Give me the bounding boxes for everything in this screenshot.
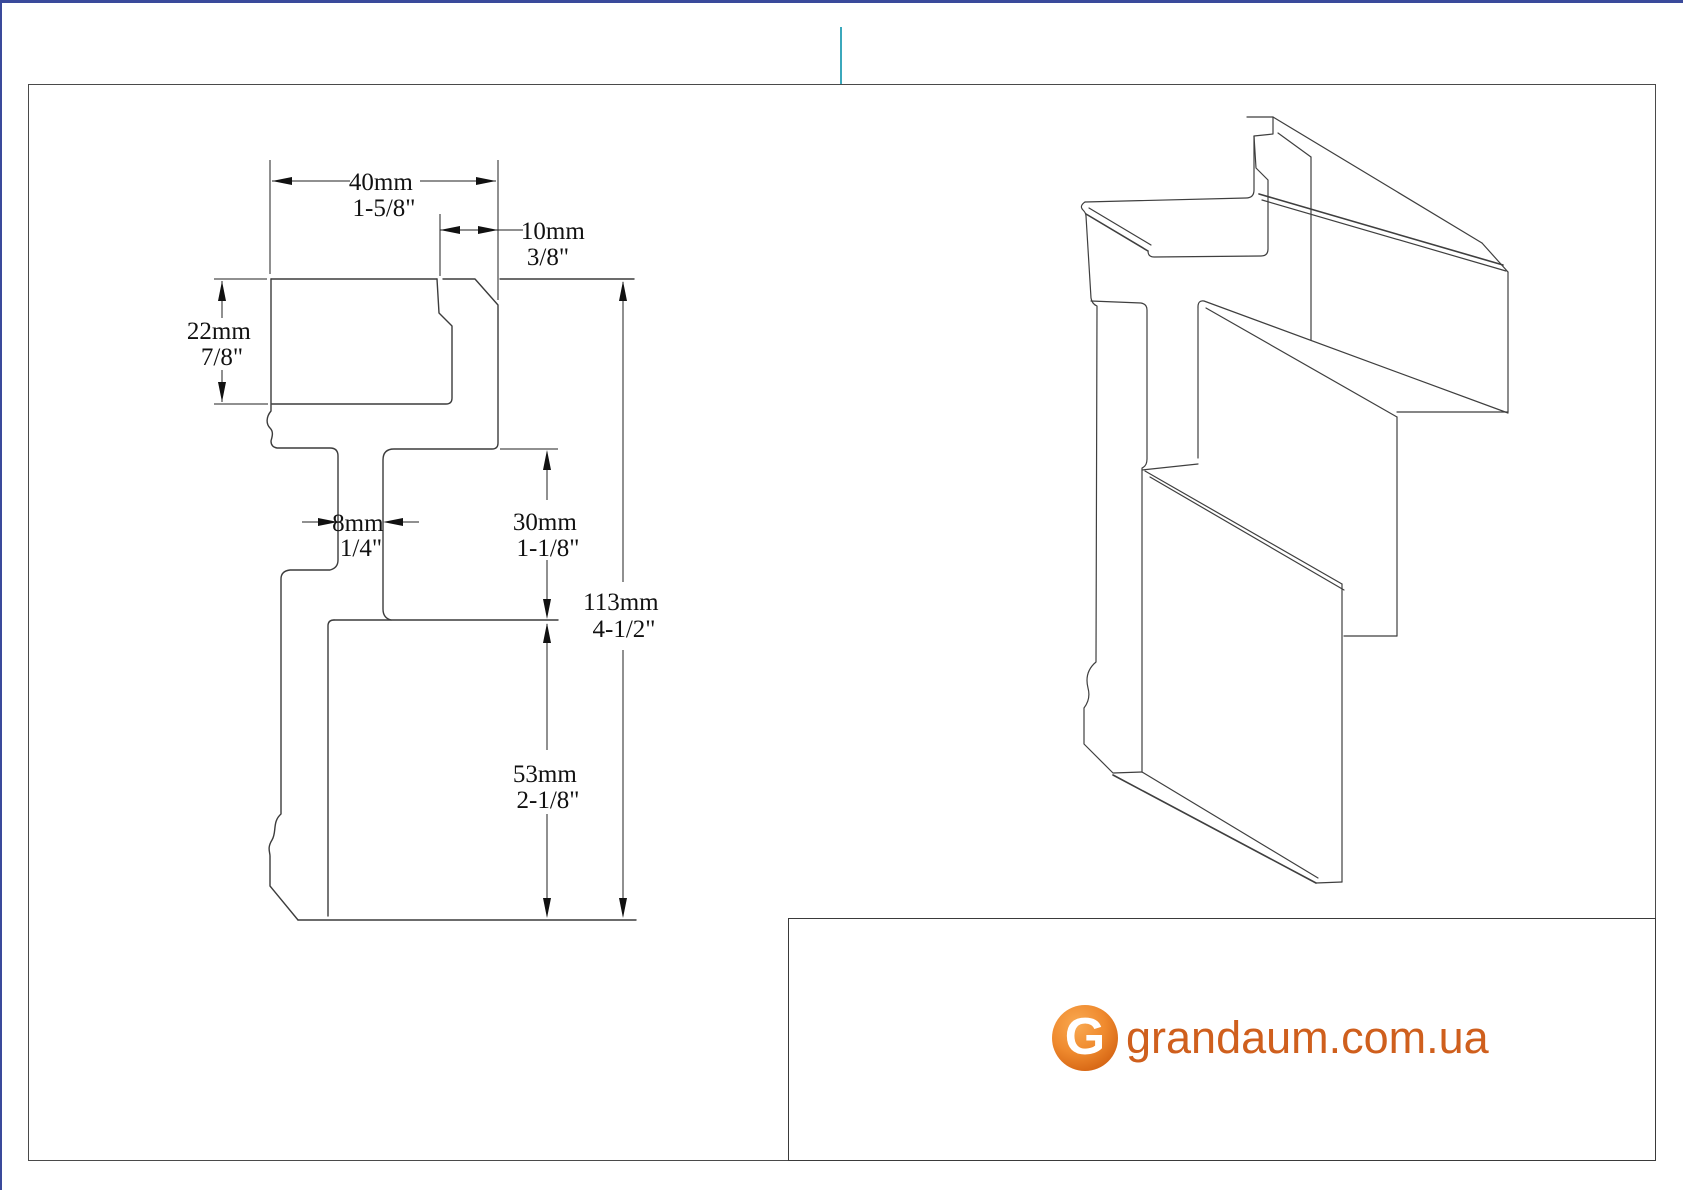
dim-notch-label: 10mm 3/8" [521,218,591,271]
dim-middle-height-label: 30mm 1-1/8" [513,509,583,562]
brand-logo: G grandaum.com.ua [1052,1003,1489,1073]
profile-bottom-box-left [328,620,334,916]
dim-top-height-label: 22mm 7/8" [187,318,257,371]
website-url: grandaum.com.ua [1126,1012,1489,1064]
profile-view-3d [1081,117,1508,883]
drawing-page: { "page": { "top_border_color": "#3a4a9b… [0,0,1683,1190]
dim-bottom-height-label: 53mm 2-1/8" [513,761,583,814]
dim-total-height-label: 113mm 4-1/2" [583,589,665,643]
profile-groove [272,279,452,404]
dimension-labels: 40mm 1-5/8" 10mm 3/8" 22mm 7/8" 8mm 1/4"… [187,169,665,814]
dim-stem-label: 8mm 1/4" [332,510,390,562]
profile-chamfer-right [383,279,498,620]
profile-section-2d [267,279,636,920]
logo-letter: G [1065,1011,1105,1063]
dim-width-label: 40mm 1-5/8" [349,169,419,222]
logo-g-icon: G [1052,1005,1118,1071]
